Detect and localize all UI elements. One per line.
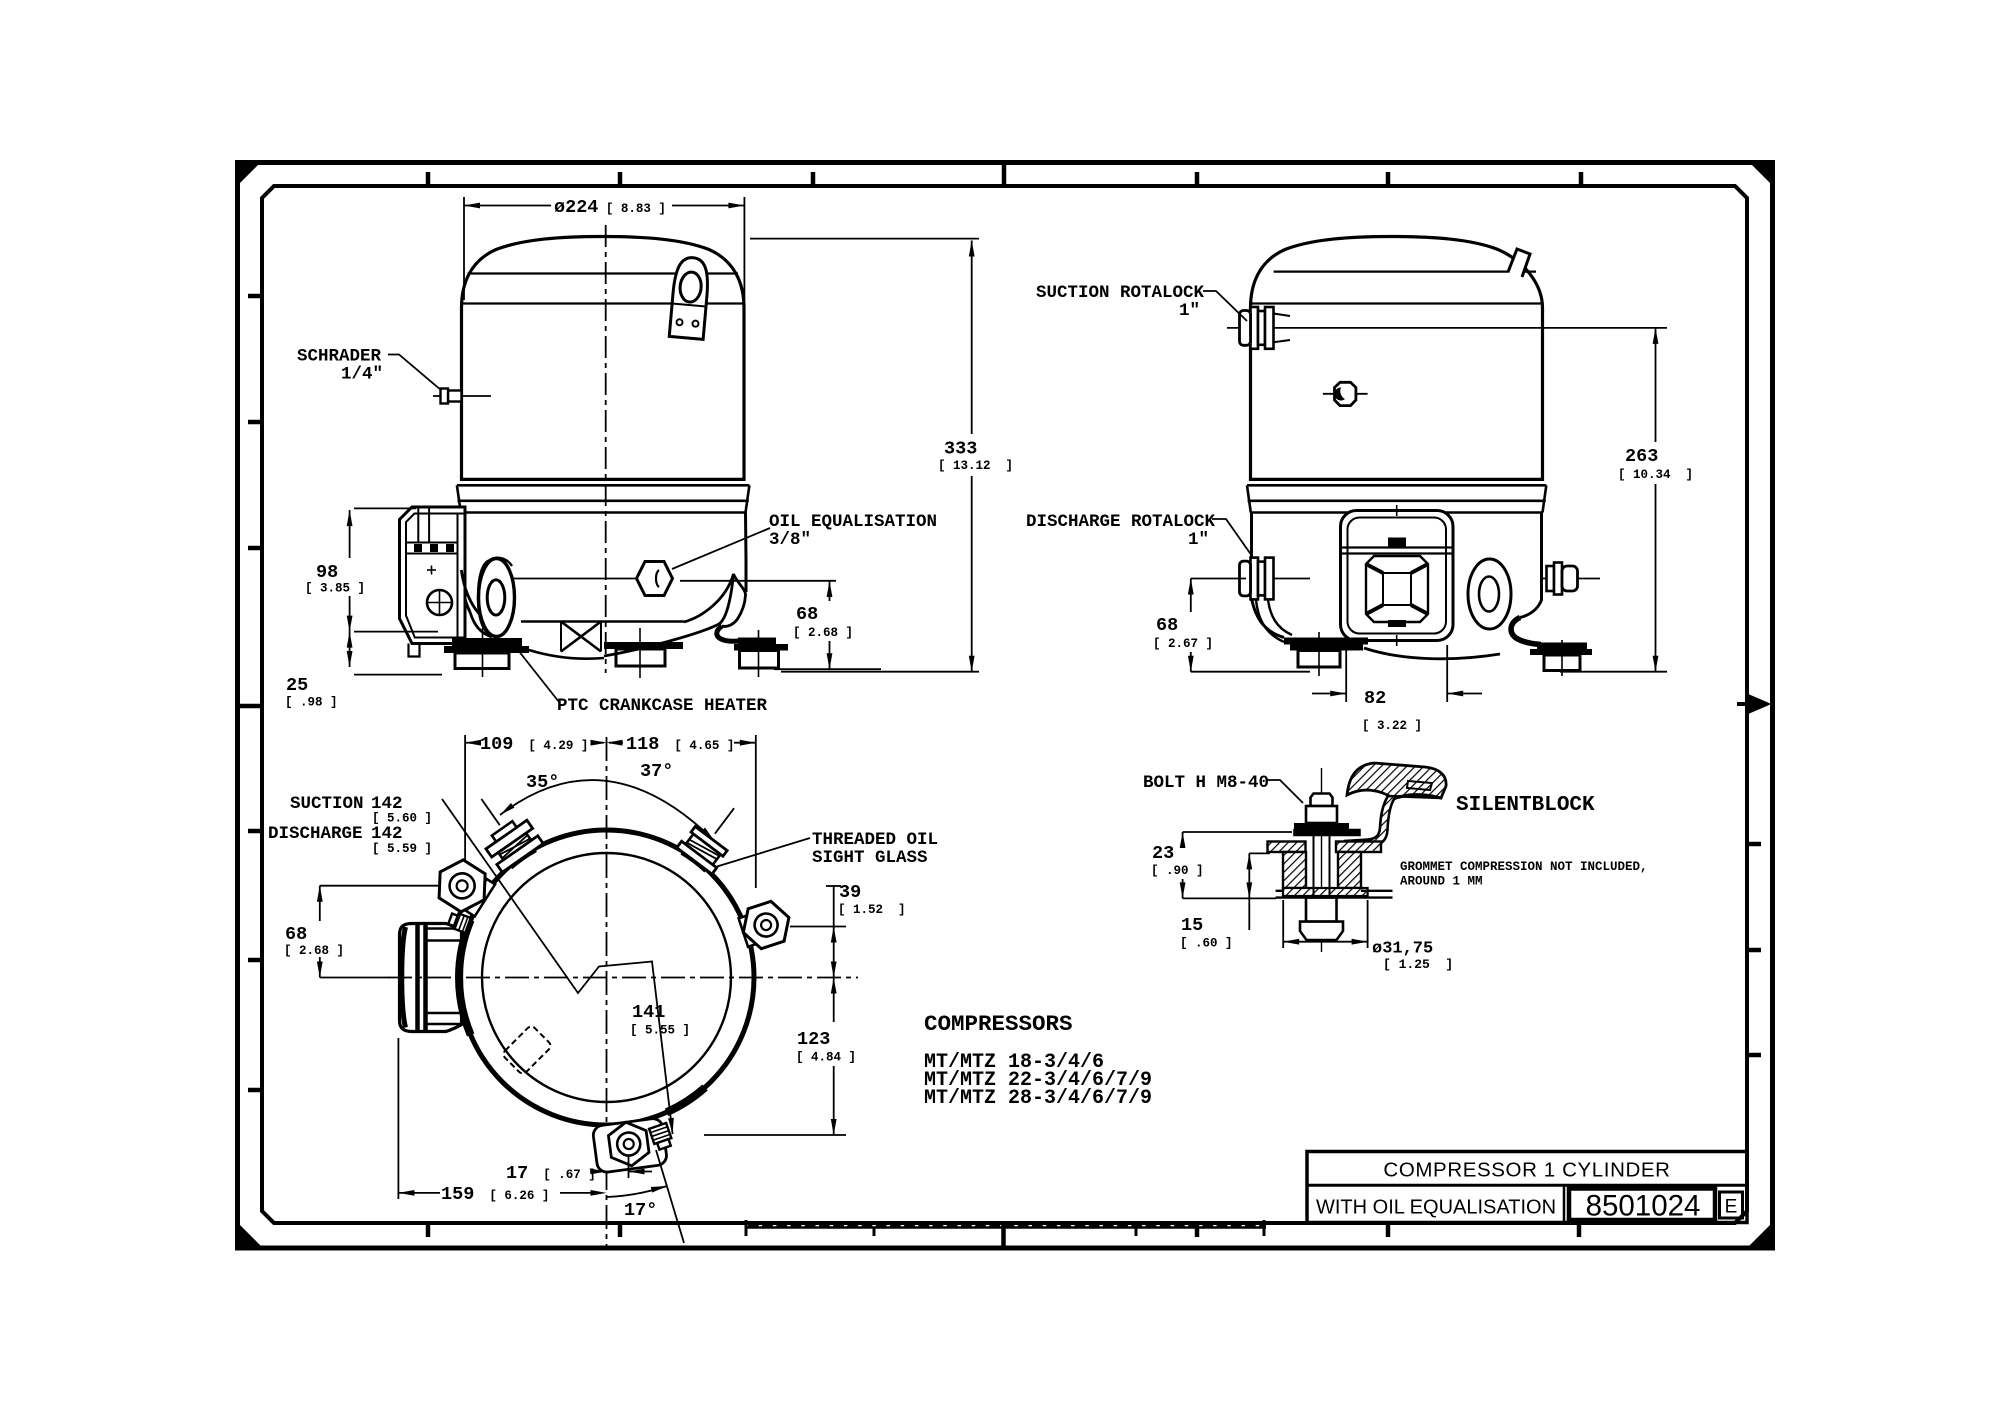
svg-text:[ 5.59 ]: [ 5.59 ] <box>372 842 432 856</box>
svg-text:3/8": 3/8" <box>769 530 811 550</box>
svg-text:68: 68 <box>1156 615 1178 636</box>
svg-text:SUCTION: SUCTION <box>290 794 364 814</box>
svg-text:WITH OIL EQUALISATION: WITH OIL EQUALISATION <box>1316 1197 1556 1219</box>
svg-text:[ 3.85 ]: [ 3.85 ] <box>305 582 365 596</box>
svg-text:SUCTION ROTALOCK: SUCTION ROTALOCK <box>1036 283 1205 303</box>
svg-text:1": 1" <box>1179 301 1200 321</box>
svg-text:[ 1.25 ]: [ 1.25 ] <box>1383 957 1453 972</box>
svg-text:COMPRESSOR 1 CYLINDER: COMPRESSOR 1 CYLINDER <box>1383 1159 1670 1182</box>
svg-text:[ 3.22 ]: [ 3.22 ] <box>1362 719 1422 733</box>
svg-text:ø31,75: ø31,75 <box>1372 940 1433 959</box>
svg-text:PTC CRANKCASE HEATER: PTC CRANKCASE HEATER <box>557 696 768 716</box>
svg-text:37°: 37° <box>640 761 673 782</box>
svg-text:15: 15 <box>1181 915 1203 936</box>
svg-text:[ 10.34 ]: [ 10.34 ] <box>1618 468 1693 482</box>
svg-text:[ 2.68 ]: [ 2.68 ] <box>793 626 853 640</box>
svg-text:BOLT H M8-40: BOLT H M8-40 <box>1143 773 1269 793</box>
svg-text:141: 141 <box>632 1002 665 1023</box>
svg-text:[ 4.84 ]: [ 4.84 ] <box>796 1051 856 1065</box>
svg-text:OIL EQUALISATION: OIL EQUALISATION <box>769 512 937 532</box>
svg-text:82: 82 <box>1364 688 1386 709</box>
svg-text:142: 142 <box>371 824 403 844</box>
svg-text:COMPRESSORS: COMPRESSORS <box>924 1011 1073 1037</box>
svg-text:SCHRADER: SCHRADER <box>297 347 382 367</box>
svg-text:E: E <box>1725 1197 1738 1218</box>
svg-text:68: 68 <box>285 924 307 945</box>
svg-text:THREADED OIL: THREADED OIL <box>812 830 938 850</box>
svg-text:123: 123 <box>797 1029 830 1050</box>
svg-text:GROMMET COMPRESSION NOT INCLUD: GROMMET COMPRESSION NOT INCLUDED, <box>1400 860 1648 874</box>
svg-text:[ 13.12 ]: [ 13.12 ] <box>938 459 1013 473</box>
svg-text:98: 98 <box>316 562 338 583</box>
svg-text:[ 5.55 ]: [ 5.55 ] <box>630 1024 690 1038</box>
svg-text:[ 2.67 ]: [ 2.67 ] <box>1153 637 1213 651</box>
svg-text:AROUND 1 MM: AROUND 1 MM <box>1400 875 1483 889</box>
svg-text:[ .98 ]: [ .98 ] <box>285 696 338 710</box>
svg-text:[ 1.52 ]: [ 1.52 ] <box>838 903 906 917</box>
svg-text:DISCHARGE: DISCHARGE <box>268 824 363 844</box>
svg-text:25: 25 <box>286 675 308 696</box>
svg-text:[ 2.68 ]: [ 2.68 ] <box>284 944 344 958</box>
svg-text:DISCHARGE ROTALOCK: DISCHARGE ROTALOCK <box>1026 512 1216 532</box>
svg-text:MT/MTZ 28-3/4/6/7/9: MT/MTZ 28-3/4/6/7/9 <box>924 1087 1152 1110</box>
svg-text:[ .60 ]: [ .60 ] <box>1180 937 1233 951</box>
svg-text:23: 23 <box>1152 843 1174 864</box>
svg-text:39: 39 <box>839 882 861 903</box>
svg-text:1": 1" <box>1188 530 1209 550</box>
svg-text:263: 263 <box>1625 446 1658 467</box>
svg-text:333: 333 <box>944 439 977 460</box>
svg-text:SIGHT GLASS: SIGHT GLASS <box>812 848 928 868</box>
svg-text:8501024: 8501024 <box>1586 1190 1701 1223</box>
svg-text:68: 68 <box>796 604 818 625</box>
svg-text:35°: 35° <box>526 772 559 793</box>
svg-text:SILENTBLOCK: SILENTBLOCK <box>1456 794 1595 817</box>
svg-text:1/4": 1/4" <box>341 365 383 385</box>
svg-text:17°: 17° <box>624 1200 657 1221</box>
svg-text:[ .90 ]: [ .90 ] <box>1151 864 1204 878</box>
